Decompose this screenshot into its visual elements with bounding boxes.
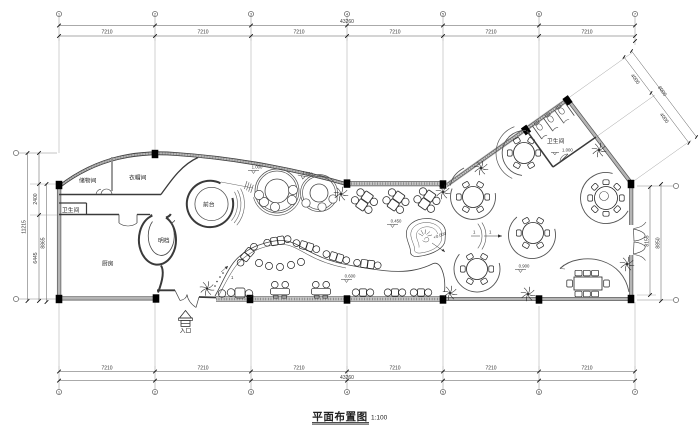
- svg-text:5: 5: [442, 391, 444, 395]
- svg-text:6445: 6445: [33, 252, 39, 263]
- svg-text:0.900: 0.900: [519, 264, 530, 269]
- svg-text:前台: 前台: [203, 201, 215, 209]
- svg-text:8155: 8155: [645, 235, 651, 246]
- svg-text:7210: 7210: [101, 30, 112, 36]
- svg-text:2: 2: [154, 391, 156, 395]
- svg-text:4: 4: [346, 13, 348, 17]
- svg-text:7210: 7210: [485, 366, 496, 372]
- svg-text:1.000: 1.000: [562, 148, 573, 153]
- svg-text:0.450: 0.450: [391, 219, 402, 224]
- svg-text:衣帽间: 衣帽间: [129, 174, 147, 182]
- svg-text:8865: 8865: [41, 237, 47, 248]
- svg-text:43260: 43260: [340, 19, 354, 25]
- svg-text:0.600: 0.600: [345, 274, 356, 279]
- svg-text:7210: 7210: [101, 366, 112, 372]
- svg-text:7210: 7210: [389, 30, 400, 36]
- svg-text:3: 3: [250, 13, 252, 17]
- svg-text:7210: 7210: [197, 30, 208, 36]
- svg-text:1:100: 1:100: [371, 415, 388, 422]
- svg-text:7210: 7210: [581, 366, 592, 372]
- svg-text:2: 2: [154, 13, 156, 17]
- svg-text:4: 4: [346, 391, 348, 395]
- svg-text:6: 6: [538, 13, 540, 17]
- svg-text:卫生间: 卫生间: [547, 137, 565, 145]
- svg-text:11215: 11215: [22, 220, 28, 234]
- svg-text:1.000: 1.000: [252, 165, 263, 170]
- svg-text:8850: 8850: [656, 237, 662, 248]
- svg-text:1: 1: [58, 13, 60, 17]
- svg-text:6: 6: [538, 391, 540, 395]
- svg-text:7: 7: [634, 13, 636, 17]
- svg-text:7210: 7210: [389, 366, 400, 372]
- svg-text:储物间: 储物间: [79, 177, 97, 185]
- svg-text:43260: 43260: [340, 375, 354, 381]
- svg-text:7210: 7210: [485, 30, 496, 36]
- svg-text:入口: 入口: [180, 328, 192, 335]
- svg-text:厨房: 厨房: [102, 260, 114, 268]
- svg-text:3: 3: [250, 391, 252, 395]
- svg-text:5: 5: [442, 13, 444, 17]
- svg-text:7: 7: [634, 391, 636, 395]
- svg-text:1: 1: [58, 391, 60, 395]
- svg-text:明档: 明档: [158, 237, 170, 245]
- svg-text:2400: 2400: [33, 193, 39, 204]
- svg-text:7210: 7210: [293, 30, 304, 36]
- svg-text:卫生间: 卫生间: [62, 206, 80, 214]
- svg-text:7210: 7210: [293, 366, 304, 372]
- svg-text:平面布置图: 平面布置图: [312, 410, 368, 423]
- svg-text:7210: 7210: [197, 366, 208, 372]
- svg-text:7210: 7210: [581, 30, 592, 36]
